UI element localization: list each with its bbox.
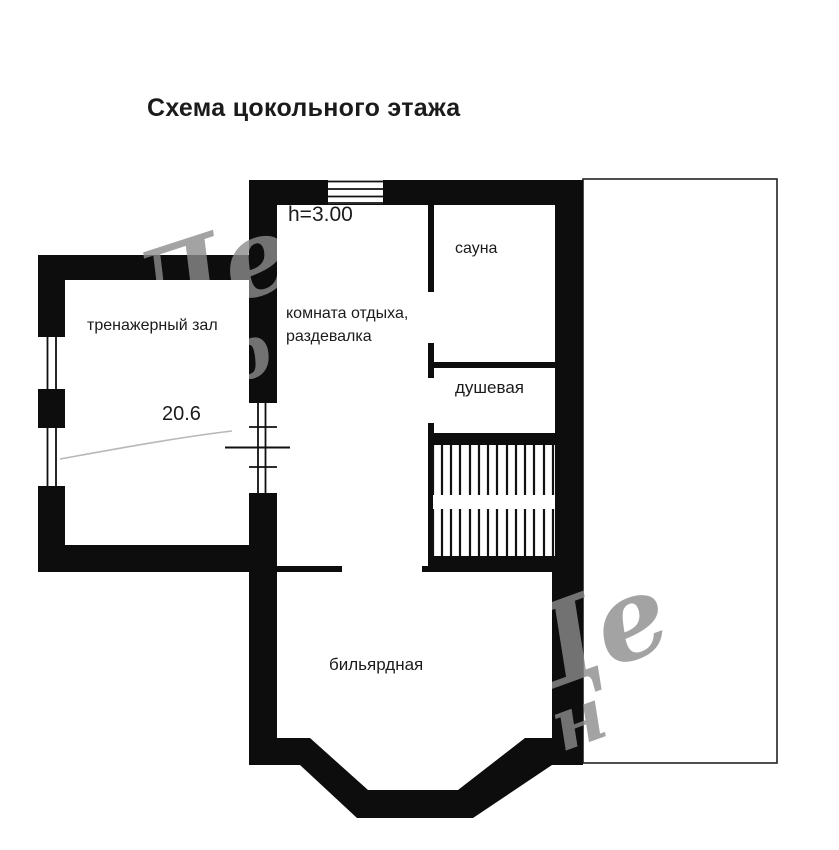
floor-plan-page: Де пр Де н xyxy=(0,0,839,850)
window-gym-lower-opening xyxy=(38,428,65,486)
room-label-lounge-line1: комната отдыха, xyxy=(286,305,408,322)
ceiling-height-note: h=3.00 xyxy=(288,203,353,227)
window-gym-upper-opening xyxy=(38,337,65,389)
page-title: Схема цокольного этажа xyxy=(147,94,460,123)
room-area-gym: 20.6 xyxy=(162,403,201,426)
room-label-shower: душевая xyxy=(455,378,524,398)
door-gap-shower xyxy=(427,378,435,423)
floor-plan-drawing: Де пр Де н xyxy=(0,0,839,850)
door-gap-sauna xyxy=(427,292,435,343)
doorway-lounge-billiard xyxy=(342,560,422,572)
room-label-sauna: сауна xyxy=(455,240,497,258)
room-label-lounge: комната отдыха,раздевалка xyxy=(286,302,408,348)
room-label-billiard: бильярдная xyxy=(329,655,423,675)
room-label-lounge-line2: раздевалка xyxy=(286,328,372,345)
room-lounge-floor xyxy=(277,205,428,566)
room-label-gym: тренажерный зал xyxy=(87,317,218,335)
window-north-opening xyxy=(328,180,383,204)
room-sauna-floor xyxy=(434,205,555,362)
